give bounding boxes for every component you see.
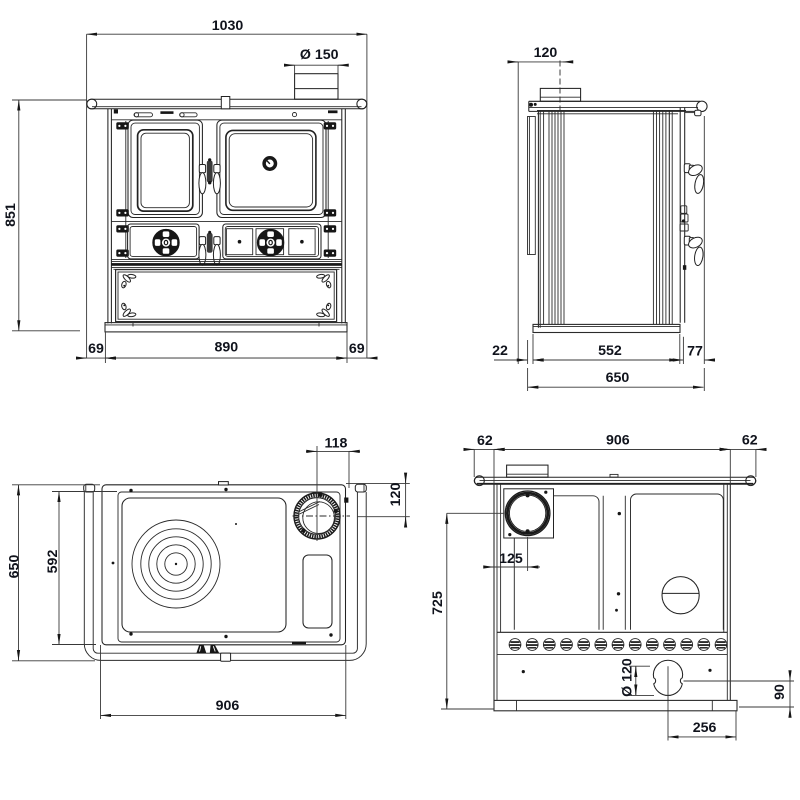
svg-text:69: 69: [88, 341, 104, 357]
svg-text:118: 118: [325, 436, 348, 452]
svg-text:120: 120: [388, 483, 404, 507]
svg-text:256: 256: [693, 720, 717, 736]
svg-text:120: 120: [534, 45, 558, 61]
svg-text:62: 62: [742, 433, 758, 449]
svg-text:77: 77: [687, 343, 703, 359]
svg-text:Ø 150: Ø 150: [300, 47, 339, 63]
svg-text:69: 69: [349, 341, 365, 357]
svg-text:552: 552: [598, 343, 622, 359]
svg-text:906: 906: [216, 698, 240, 714]
svg-text:22: 22: [492, 343, 508, 359]
svg-text:1030: 1030: [212, 18, 244, 34]
svg-text:125: 125: [499, 551, 523, 567]
svg-text:592: 592: [45, 550, 61, 574]
svg-text:90: 90: [772, 684, 788, 700]
svg-text:725: 725: [430, 591, 446, 615]
svg-text:851: 851: [3, 203, 19, 227]
svg-text:650: 650: [606, 370, 630, 386]
svg-text:906: 906: [606, 433, 630, 449]
svg-text:890: 890: [214, 339, 238, 355]
svg-text:62: 62: [477, 433, 493, 449]
svg-text:Ø 120: Ø 120: [620, 658, 636, 697]
svg-text:650: 650: [6, 555, 22, 579]
